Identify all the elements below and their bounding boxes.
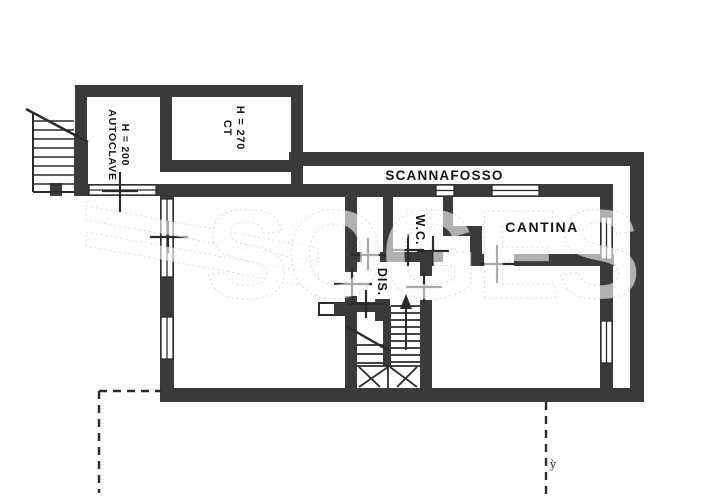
- label-ct: H = 270 CT: [219, 91, 247, 165]
- label-autoclave-height: H = 200: [118, 124, 131, 167]
- label-autoclave: H = 200 AUTOCLAVE: [103, 93, 133, 197]
- label-autoclave-name: AUTOCLAVE: [105, 109, 118, 181]
- label-wc: W.C.: [412, 208, 428, 252]
- label-ct-height: H = 270: [233, 106, 246, 150]
- label-cantina: CANTINA: [496, 219, 588, 236]
- label-scannafosso: SCANNAFOSSO: [372, 168, 517, 184]
- watermark: SOGES: [0, 0, 704, 499]
- pen-mark: ỳ: [550, 458, 556, 471]
- label-ct-name: CT: [220, 120, 233, 136]
- floor-plan: SOGES SCANNAFOSSO CANTINA W.C. DIS. H = …: [0, 0, 704, 499]
- label-dis: DIS.: [374, 262, 390, 302]
- watermark-text: SOGES: [205, 184, 638, 325]
